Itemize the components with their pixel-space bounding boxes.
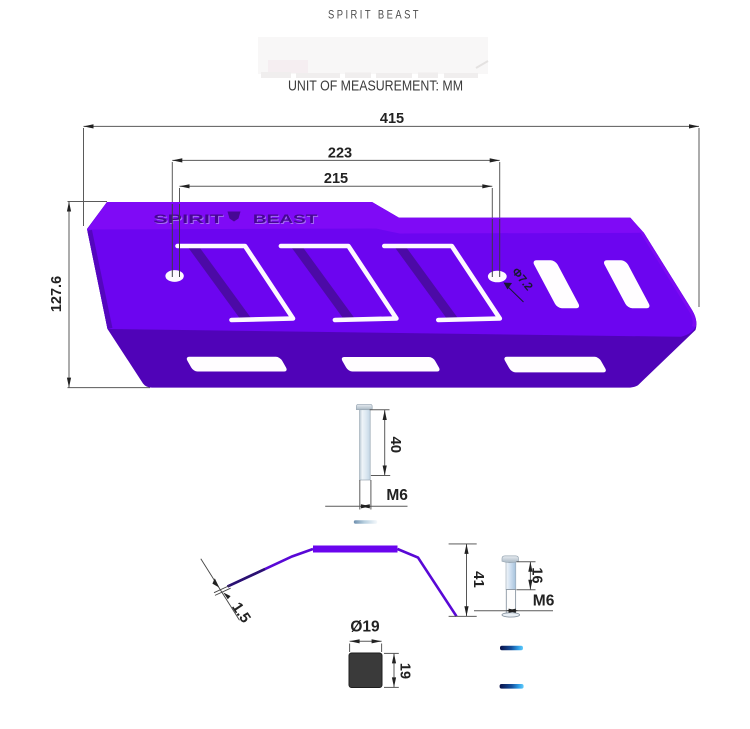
svg-text:41: 41 xyxy=(470,571,487,588)
svg-text:16: 16 xyxy=(529,567,545,583)
svg-text:SPIRIT BEAST: SPIRIT BEAST xyxy=(328,10,421,22)
svg-text:UNIT OF MEASUREMENT: MM: UNIT OF MEASUREMENT: MM xyxy=(288,78,463,95)
svg-text:223: 223 xyxy=(328,146,352,162)
svg-text:Ø19: Ø19 xyxy=(350,619,380,636)
svg-text:1.5: 1.5 xyxy=(228,599,254,626)
svg-text:SPIRIT: SPIRIT xyxy=(153,214,223,226)
svg-text:415: 415 xyxy=(380,111,404,127)
svg-text:40: 40 xyxy=(387,436,404,453)
svg-text:19: 19 xyxy=(396,663,412,679)
svg-text:BEAST: BEAST xyxy=(253,214,318,226)
svg-text:215: 215 xyxy=(324,171,348,187)
svg-text:127.6: 127.6 xyxy=(49,276,65,312)
svg-text:M6: M6 xyxy=(533,593,555,610)
svg-text:M6: M6 xyxy=(386,487,408,504)
